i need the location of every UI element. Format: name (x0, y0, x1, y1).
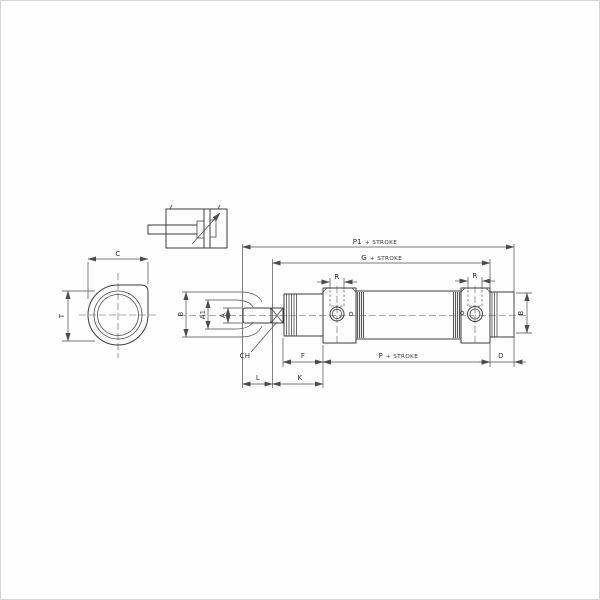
dim-A-label: A (219, 313, 227, 318)
cylinder-schematic-symbol (148, 205, 227, 248)
dim-F: F (283, 352, 323, 362)
dim-G-label: G (361, 254, 367, 262)
cylinder-dimensional-drawing: C T (1, 1, 600, 600)
dim-T: T (58, 291, 95, 341)
symbol-cushion-left (197, 221, 204, 238)
symbol-piston (204, 209, 210, 248)
dim-CH-label: CH (240, 352, 251, 360)
boss-thread-hatch (492, 292, 497, 337)
scanned-drawing-page: C T (0, 0, 600, 600)
dim-K-label: K (298, 374, 303, 382)
dim-T-label: T (58, 313, 66, 319)
dim-G-suffix: + STROKE (370, 256, 402, 262)
dim-B-rod-label: B (177, 311, 185, 316)
dim-P-suffix: + STROKE (386, 354, 418, 360)
cylinder-tube (356, 291, 461, 339)
dim-P1-suffix: + STROKE (365, 240, 397, 246)
dim-B-rear: B (516, 293, 532, 333)
dim-L: L (243, 374, 273, 384)
dim-B-rear-label: B (517, 310, 525, 315)
dim-K: K (273, 374, 324, 384)
dim-P1-stroke: P1 + STROKE (243, 238, 515, 247)
rear-head-chamfers (461, 288, 490, 292)
dim-P1-label: P1 (353, 238, 362, 246)
tube-crimp-front (358, 292, 364, 338)
tube-crimp-rear (454, 292, 460, 338)
symbol-body (166, 209, 227, 248)
dim-P-stroke: P + STROKE (323, 352, 490, 362)
dim-A1-label: A1 (199, 310, 207, 320)
side-view (179, 286, 529, 344)
dim-P-label: P (378, 352, 383, 360)
dim-G-stroke: G + STROKE (273, 254, 491, 263)
gland-nose (284, 294, 323, 336)
front-head-chamfers (323, 288, 356, 292)
symbol-port-ticks (170, 205, 220, 209)
symbol-cushion-right (210, 220, 216, 237)
symbol-piston-rod (148, 225, 197, 234)
rear-boss (490, 292, 514, 337)
dim-R-rear-label: R (472, 272, 477, 280)
dim-F-label: F (301, 352, 305, 360)
side-view-dimensions: P1 + STROKE G + STROKE R R B (177, 238, 532, 388)
dim-C-label: C (115, 250, 120, 258)
front-view: C T (58, 250, 158, 358)
dim-R-front-label: R (334, 273, 339, 281)
dim-D-label: D (498, 352, 504, 360)
dim-L-label: L (256, 374, 260, 382)
nose-thread-hatch (287, 294, 297, 336)
piston-rod-thread (243, 308, 271, 323)
dim-D: D (479, 352, 526, 362)
